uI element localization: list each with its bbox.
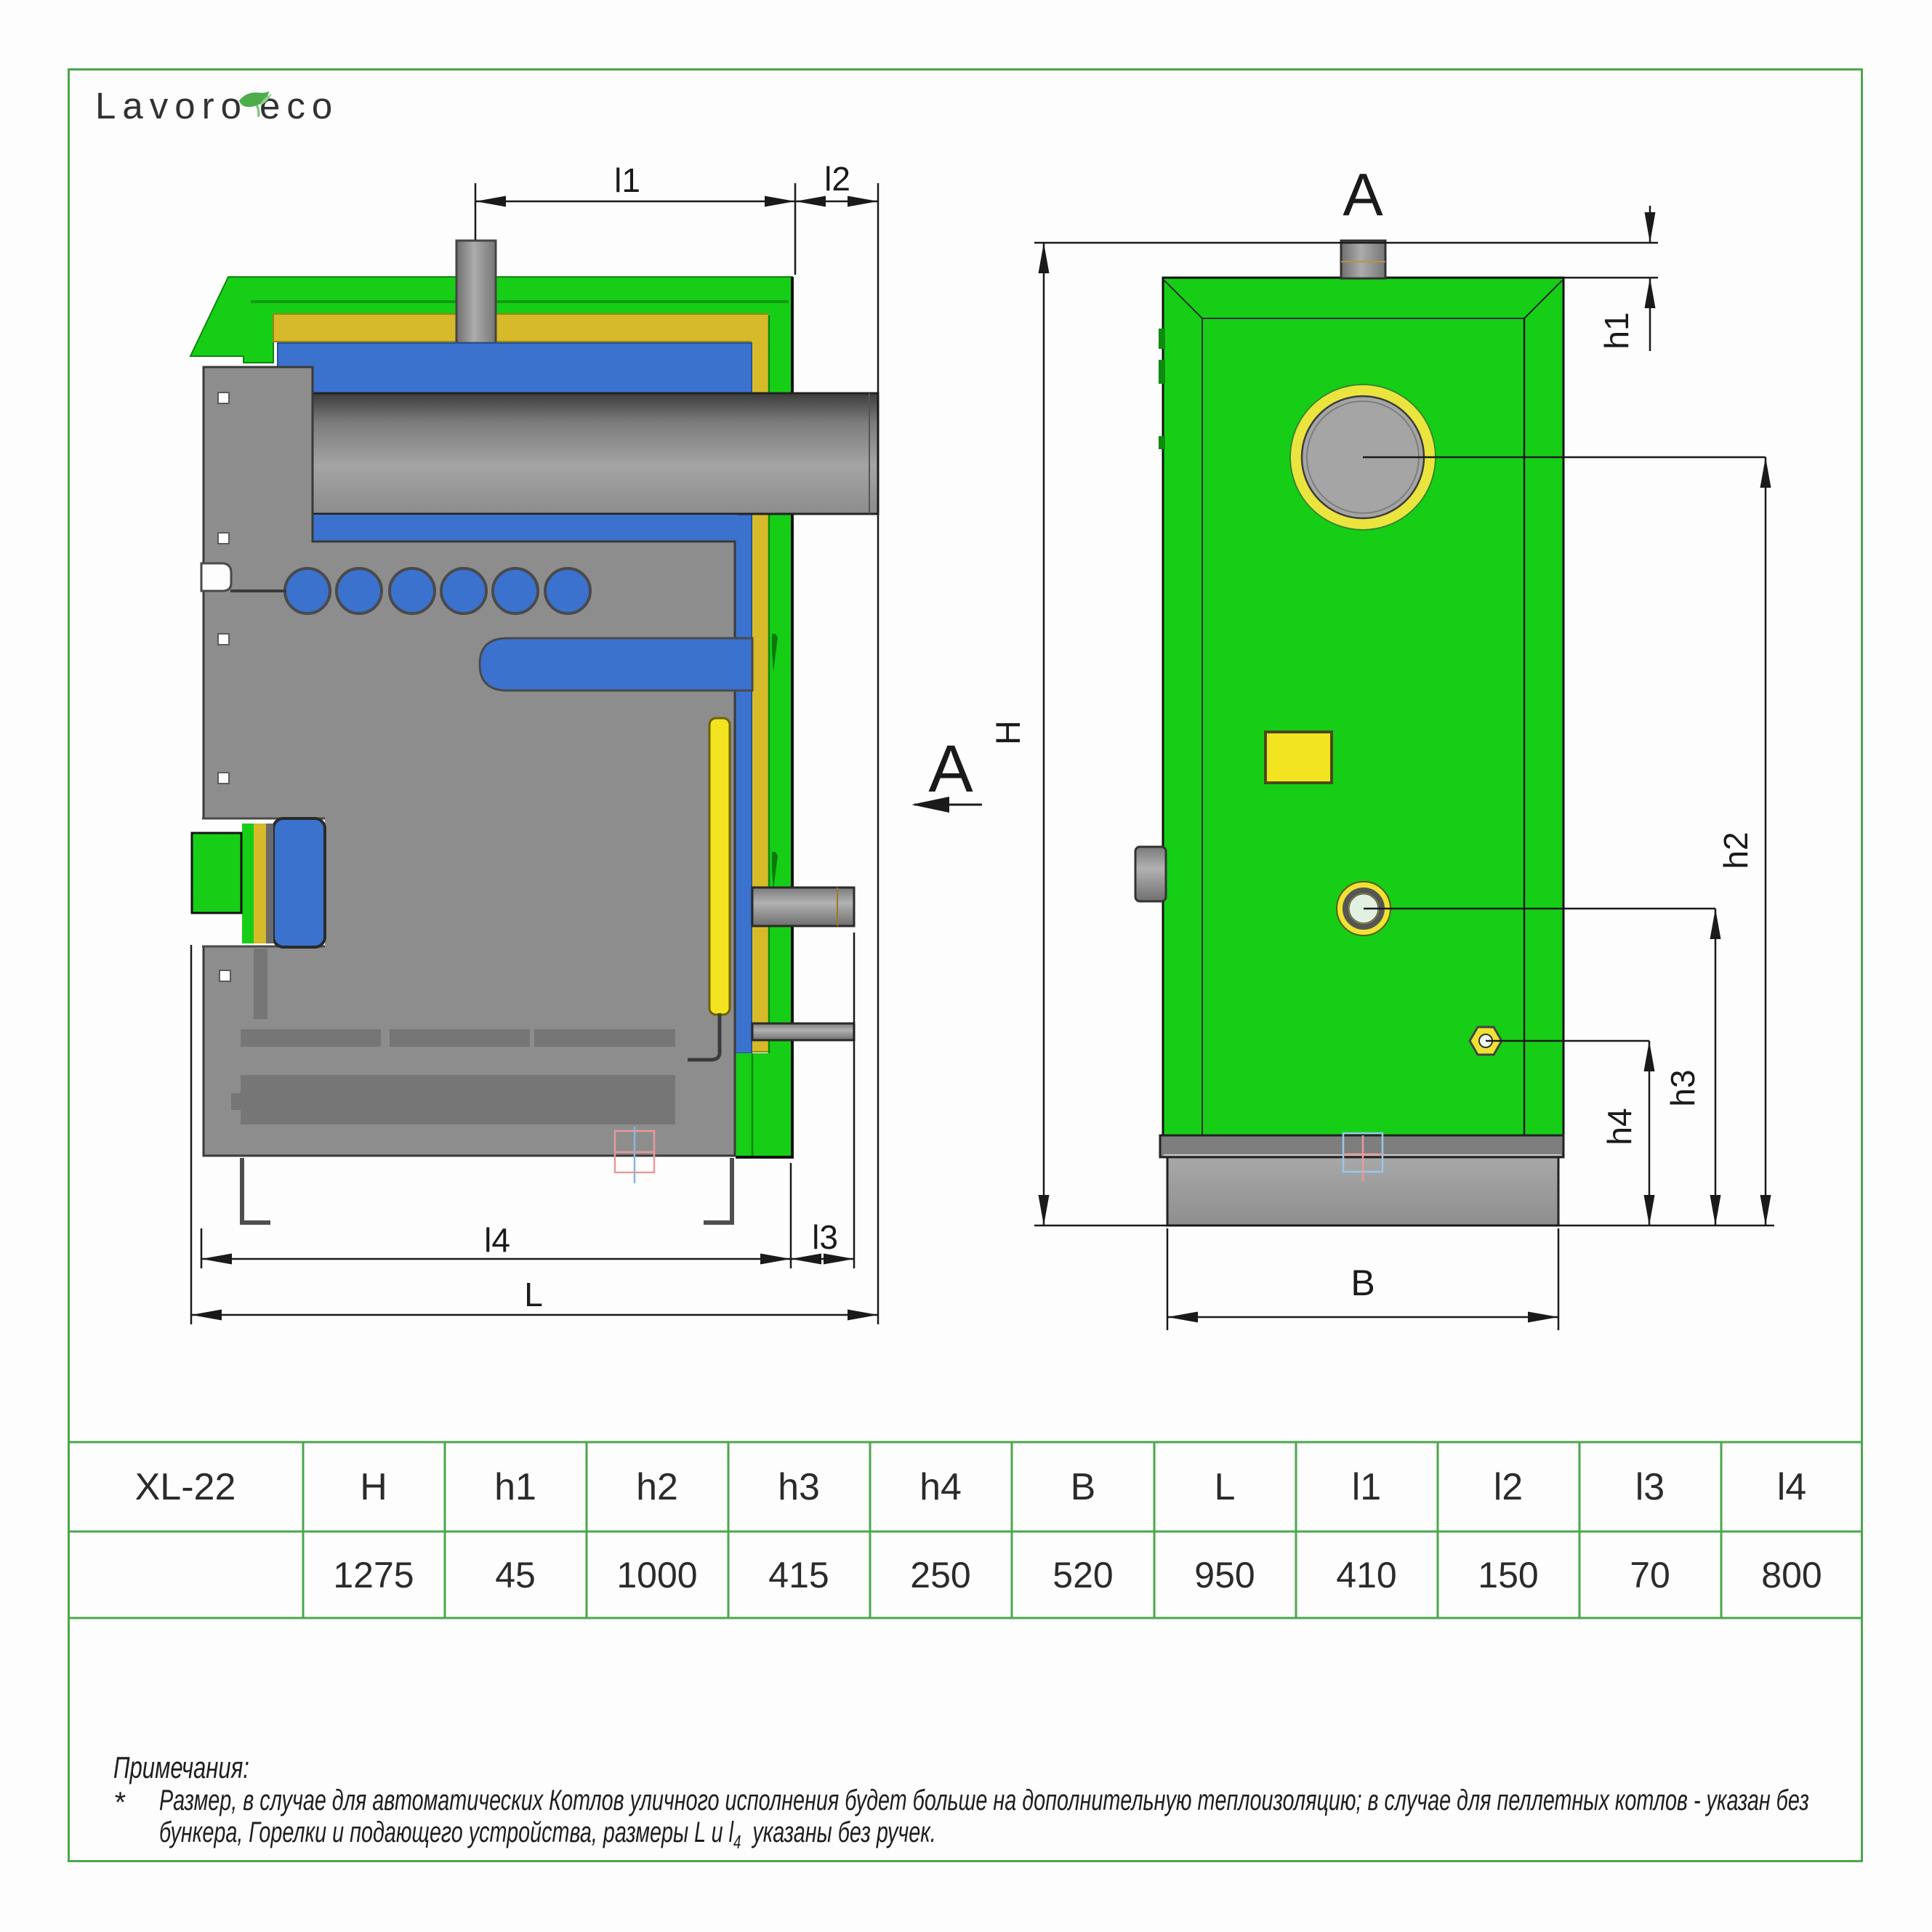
svg-text:l2: l2	[1494, 1466, 1523, 1508]
svg-text:950: 950	[1194, 1555, 1255, 1595]
svg-text:250: 250	[910, 1555, 970, 1595]
svg-text:1275: 1275	[333, 1555, 414, 1595]
svg-text:415: 415	[768, 1555, 829, 1595]
svg-text:410: 410	[1336, 1555, 1396, 1595]
svg-text:XL-22: XL-22	[135, 1466, 236, 1508]
svg-text:45: 45	[495, 1555, 536, 1595]
svg-text:L: L	[1215, 1466, 1236, 1508]
svg-text:150: 150	[1478, 1555, 1538, 1595]
svg-text:H: H	[360, 1466, 387, 1508]
svg-text:1000: 1000	[616, 1555, 697, 1595]
svg-text:h2: h2	[636, 1466, 678, 1508]
svg-text:h3: h3	[778, 1466, 820, 1508]
svg-text:800: 800	[1761, 1555, 1822, 1595]
svg-text:B: B	[1071, 1466, 1096, 1508]
svg-text:l4: l4	[1777, 1466, 1806, 1508]
svg-text:l1: l1	[1352, 1466, 1381, 1508]
svg-text:h4: h4	[919, 1466, 962, 1508]
svg-text:l3: l3	[1635, 1466, 1665, 1508]
svg-text:70: 70	[1630, 1555, 1670, 1595]
svg-text:h1: h1	[494, 1466, 536, 1508]
svg-text:520: 520	[1052, 1555, 1113, 1595]
